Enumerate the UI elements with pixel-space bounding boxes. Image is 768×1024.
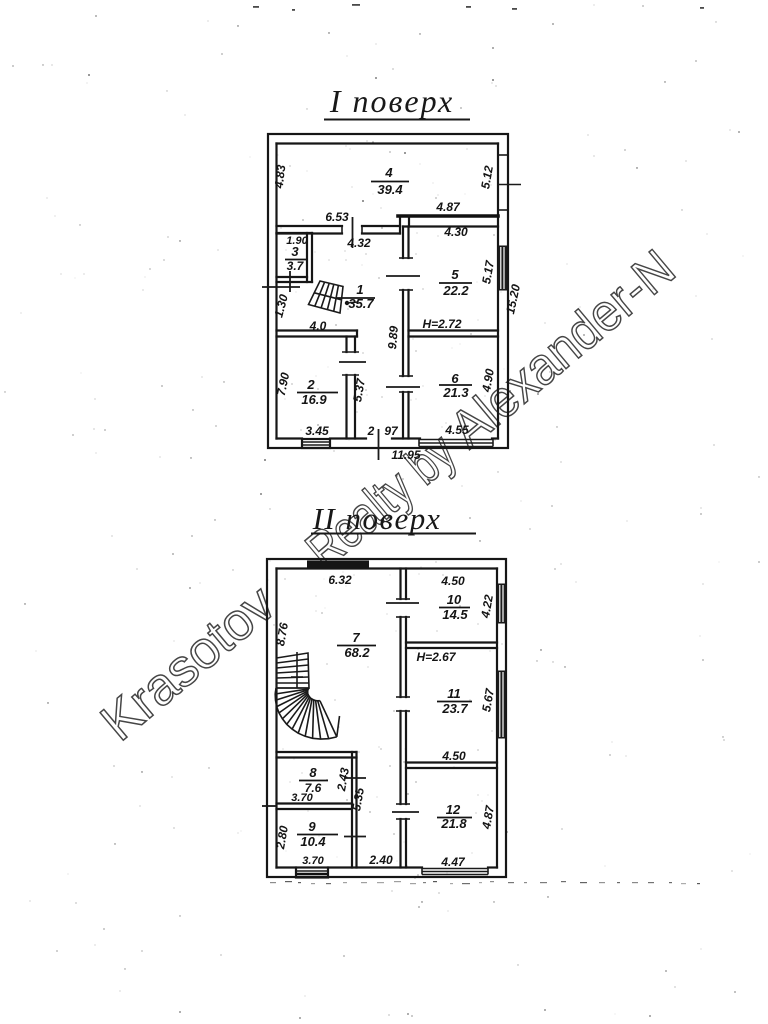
svg-text:9.89: 9.89 — [385, 325, 401, 350]
svg-text:1.30: 1.30 — [271, 293, 291, 319]
svg-text:5.37: 5.37 — [350, 376, 368, 403]
svg-text:14.5: 14.5 — [442, 607, 468, 622]
svg-text:8.76: 8.76 — [273, 621, 291, 647]
svg-text:3.70: 3.70 — [291, 792, 313, 804]
svg-text:3.45: 3.45 — [305, 424, 329, 438]
svg-text:5.35: 5.35 — [349, 786, 367, 812]
svg-text:4.30: 4.30 — [443, 225, 468, 239]
svg-text:2: 2 — [306, 377, 315, 392]
svg-text:2.43: 2.43 — [334, 766, 352, 793]
svg-text:21.3: 21.3 — [442, 385, 469, 400]
svg-text:12: 12 — [446, 802, 461, 817]
svg-text:10.4: 10.4 — [300, 834, 326, 849]
svg-text:4.47: 4.47 — [440, 855, 466, 869]
svg-text:11: 11 — [447, 686, 461, 701]
svg-text:H=2.67: H=2.67 — [416, 650, 456, 664]
svg-text:4.32: 4.32 — [346, 236, 371, 250]
svg-text:97: 97 — [384, 424, 399, 438]
svg-text:4.55: 4.55 — [444, 423, 469, 437]
svg-text:6: 6 — [451, 371, 459, 386]
svg-text:3.7: 3.7 — [287, 259, 305, 273]
svg-text:16.9: 16.9 — [301, 392, 327, 407]
svg-text:4.83: 4.83 — [272, 164, 289, 190]
svg-text:5: 5 — [451, 267, 459, 282]
svg-text:2.80: 2.80 — [273, 824, 291, 851]
svg-text:II поверх: II поверх — [312, 501, 442, 536]
svg-text:4.87: 4.87 — [435, 200, 461, 214]
svg-text:23.7: 23.7 — [441, 701, 468, 716]
svg-text:I поверх: I поверх — [329, 83, 454, 119]
svg-text:6.53: 6.53 — [325, 210, 349, 224]
svg-text:4.0: 4.0 — [309, 319, 327, 333]
svg-text:3: 3 — [291, 244, 299, 259]
svg-text:4.50: 4.50 — [440, 574, 465, 588]
svg-text:4.50: 4.50 — [441, 749, 466, 763]
svg-text:3.70: 3.70 — [302, 855, 324, 867]
svg-text:22.2: 22.2 — [442, 283, 469, 298]
svg-text:5.67: 5.67 — [479, 686, 497, 713]
svg-text:7: 7 — [352, 630, 360, 645]
svg-text:11.95: 11.95 — [391, 448, 420, 462]
svg-text:21.8: 21.8 — [440, 816, 467, 831]
svg-text:4.87: 4.87 — [479, 803, 497, 831]
svg-text:Krasotov: Krasotov — [90, 573, 287, 752]
svg-text:4.22: 4.22 — [478, 593, 496, 620]
svg-text:68.2: 68.2 — [344, 645, 370, 660]
svg-text:1: 1 — [356, 282, 363, 297]
svg-text:H=2.72: H=2.72 — [422, 317, 461, 331]
svg-text:5.17: 5.17 — [479, 258, 497, 285]
svg-text:6.32: 6.32 — [328, 573, 352, 587]
svg-text:35.7: 35.7 — [348, 296, 374, 311]
svg-text:2: 2 — [367, 424, 375, 438]
svg-text:2.40: 2.40 — [368, 853, 393, 867]
svg-text:9: 9 — [308, 819, 316, 834]
svg-text:4: 4 — [384, 165, 393, 180]
svg-text:8: 8 — [309, 765, 317, 780]
svg-text:Alexander-N: Alexander-N — [439, 238, 686, 459]
svg-text:10: 10 — [447, 592, 462, 607]
svg-text:39.4: 39.4 — [377, 182, 403, 197]
svg-text:5.12: 5.12 — [478, 164, 496, 190]
